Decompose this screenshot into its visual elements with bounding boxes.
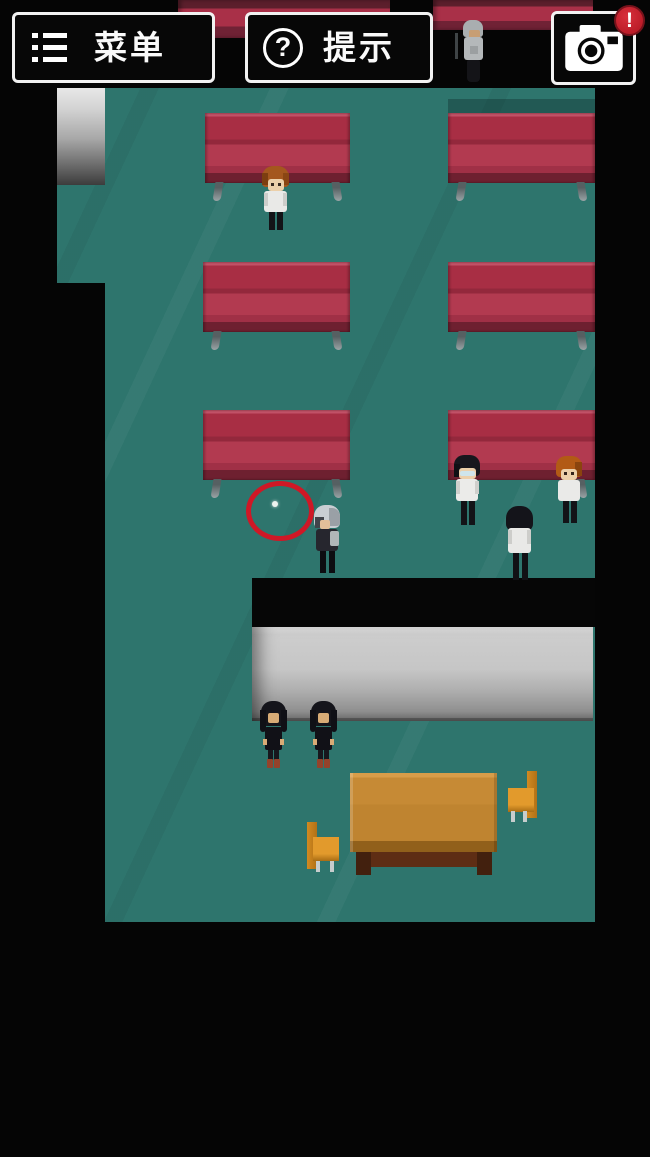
sprite-block xyxy=(470,46,478,54)
bench-body xyxy=(448,262,595,332)
chair-right-leg xyxy=(511,811,515,822)
wooden-table-base xyxy=(360,852,488,867)
sprite-block xyxy=(460,471,475,476)
bench-shadow xyxy=(448,99,595,113)
bench-row2-left xyxy=(203,262,350,350)
alert-badge[interactable]: ! xyxy=(614,5,645,36)
npc-back-view[interactable] xyxy=(504,506,535,580)
chair-left-seat xyxy=(313,837,339,861)
bench-row1-right xyxy=(448,113,595,201)
npc-orange-hair[interactable] xyxy=(555,456,583,523)
chair-right-seat xyxy=(508,788,534,812)
sprite-block xyxy=(280,739,284,745)
sprite-block xyxy=(269,212,275,230)
void-left-lower xyxy=(0,283,105,922)
sprite-block xyxy=(313,739,317,745)
sprite-block xyxy=(330,739,334,745)
void-doorway-strip xyxy=(252,578,595,627)
npc-brown-hair[interactable] xyxy=(261,166,290,232)
player-silver-hair[interactable] xyxy=(312,505,342,573)
table-leg-left xyxy=(356,852,371,875)
bench-body xyxy=(203,262,350,332)
bench-body xyxy=(203,410,350,480)
sprite-block xyxy=(513,553,519,580)
npc-girl-black-dress-1[interactable] xyxy=(259,701,288,768)
sprite-block xyxy=(320,551,326,573)
sprite-block xyxy=(264,193,268,206)
sprite-block xyxy=(469,501,475,525)
gray-cabinet xyxy=(57,88,105,185)
wooden-table xyxy=(350,773,497,852)
chair-left-leg xyxy=(330,861,334,872)
bench-body xyxy=(448,113,595,183)
sprite-block xyxy=(456,481,460,494)
bench-leg xyxy=(455,331,466,350)
sprite-block xyxy=(330,531,339,546)
item-highlight-circle[interactable] xyxy=(246,481,314,541)
sprite-block xyxy=(467,60,480,82)
sprite-block xyxy=(267,759,273,768)
chair-left-leg xyxy=(316,861,320,872)
hint-button[interactable]: ? 提示 xyxy=(245,12,433,83)
sprite-block xyxy=(263,739,267,745)
sprite-block xyxy=(318,713,329,723)
bench-row2-right xyxy=(448,262,595,350)
menu-button[interactable]: 菜单 xyxy=(12,12,215,83)
sprite-block xyxy=(461,501,467,525)
bench-leg xyxy=(210,331,221,350)
highlighted-item-dot[interactable] xyxy=(272,501,278,507)
sprite-block xyxy=(563,501,569,523)
npc-glasses[interactable] xyxy=(452,455,482,525)
sprite-block xyxy=(564,472,567,475)
chair-right-leg xyxy=(523,811,527,822)
sprite-block xyxy=(455,33,458,59)
bench-leg xyxy=(576,182,587,201)
bench-leg xyxy=(331,479,342,498)
list-icon xyxy=(32,33,67,62)
bench-leg xyxy=(576,331,587,350)
sprite-block xyxy=(329,508,340,526)
bench-leg xyxy=(331,182,342,201)
sprite-block xyxy=(324,759,330,768)
bench-leg xyxy=(331,331,342,350)
sprite-block xyxy=(317,759,323,768)
sprite-block xyxy=(278,183,281,186)
bench-leg xyxy=(212,182,223,201)
hint-button-label: 提示 xyxy=(323,31,395,64)
sprite-block xyxy=(283,193,287,206)
table-leg-right xyxy=(477,852,492,875)
bench-leg xyxy=(455,182,466,201)
sprite-block xyxy=(329,551,335,573)
camera-icon xyxy=(565,25,623,71)
sprite-block xyxy=(571,501,577,523)
question-circle-icon: ? xyxy=(263,28,303,68)
menu-button-label: 菜单 xyxy=(94,31,166,64)
sprite-block xyxy=(274,759,280,768)
sprite-block xyxy=(277,212,283,230)
sprite-block xyxy=(527,530,531,544)
sprite-block xyxy=(320,520,330,529)
sprite-block xyxy=(508,530,512,544)
gray-wall-panel xyxy=(252,627,593,721)
void-left-upper xyxy=(0,88,57,283)
sprite-block xyxy=(271,183,274,186)
camera-button[interactable]: ! xyxy=(551,11,636,85)
npc-girl-black-dress-2[interactable] xyxy=(309,701,338,768)
sprite-block xyxy=(558,480,580,501)
sprite-block xyxy=(571,472,574,475)
npc-gray-hair-cane[interactable] xyxy=(460,20,486,82)
game-viewport: 菜单 ? 提示 ! xyxy=(0,0,650,1157)
sprite-block xyxy=(475,481,479,494)
sprite-block xyxy=(268,713,279,723)
sprite-block xyxy=(522,553,528,580)
bench-leg xyxy=(210,479,221,498)
